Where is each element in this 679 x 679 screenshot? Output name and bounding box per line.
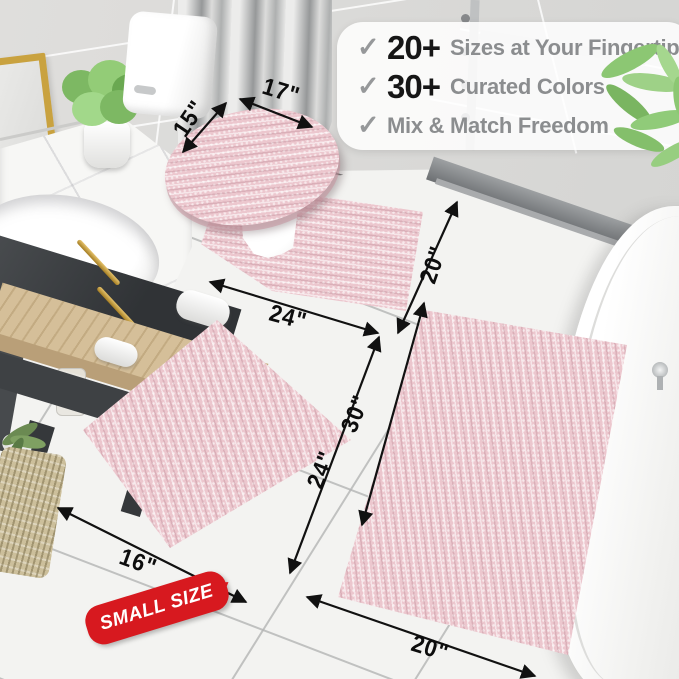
feature-count: 30+ <box>387 70 440 103</box>
check-icon: ✓ <box>357 34 387 61</box>
feature-label: Mix & Match Freedom <box>387 115 609 137</box>
product-image: 15" 17" 24" 20" 24" 16" 30" 20" ✓ 20+ Si… <box>0 0 679 679</box>
check-icon: ✓ <box>357 112 387 139</box>
feature-count: 20+ <box>387 31 440 64</box>
check-icon: ✓ <box>357 73 387 100</box>
feature-label: Curated Colors <box>450 76 605 98</box>
dimension-line <box>362 303 424 525</box>
